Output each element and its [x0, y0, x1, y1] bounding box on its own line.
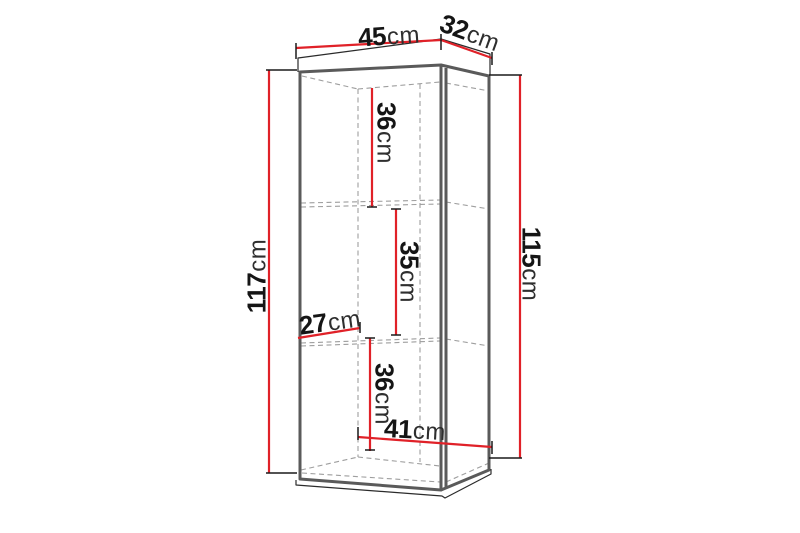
dim-height-left-unit: cm [245, 239, 272, 272]
dim-inner-depth-value: 27 [297, 307, 329, 341]
dim-label-height-right: 115cm [518, 227, 545, 301]
dim-inner-width-unit: cm [412, 417, 446, 446]
dim-label-inner-width: 41cm [383, 415, 446, 445]
dim-height-right-value: 115 [517, 227, 547, 267]
dim-width-top-unit: cm [386, 21, 421, 50]
dim-compartment-top-value: 36 [372, 102, 402, 130]
dim-height-left-value: 117 [242, 273, 272, 313]
dim-inner-width-value: 41 [383, 413, 412, 444]
dim-inner-depth-unit: cm [326, 305, 362, 336]
dim-compartment-mid-unit: cm [395, 270, 422, 303]
dim-height-right-unit: cm [517, 268, 544, 301]
dim-compartment-top-unit: cm [372, 131, 399, 164]
dim-label-compartment-top: 36cm [373, 102, 400, 164]
dim-label-width-top: 45cm [357, 20, 421, 51]
dim-label-compartment-mid: 35cm [396, 241, 423, 303]
dim-label-height-left: 117cm [244, 239, 271, 313]
dim-compartment-bot-value: 36 [370, 363, 400, 391]
dim-compartment-mid-value: 35 [395, 241, 425, 269]
dimension-diagram: 45cm 32cm 117cm 115cm 36cm 35cm 27cm 36c… [0, 0, 800, 533]
dim-width-top-value: 45 [357, 21, 387, 53]
